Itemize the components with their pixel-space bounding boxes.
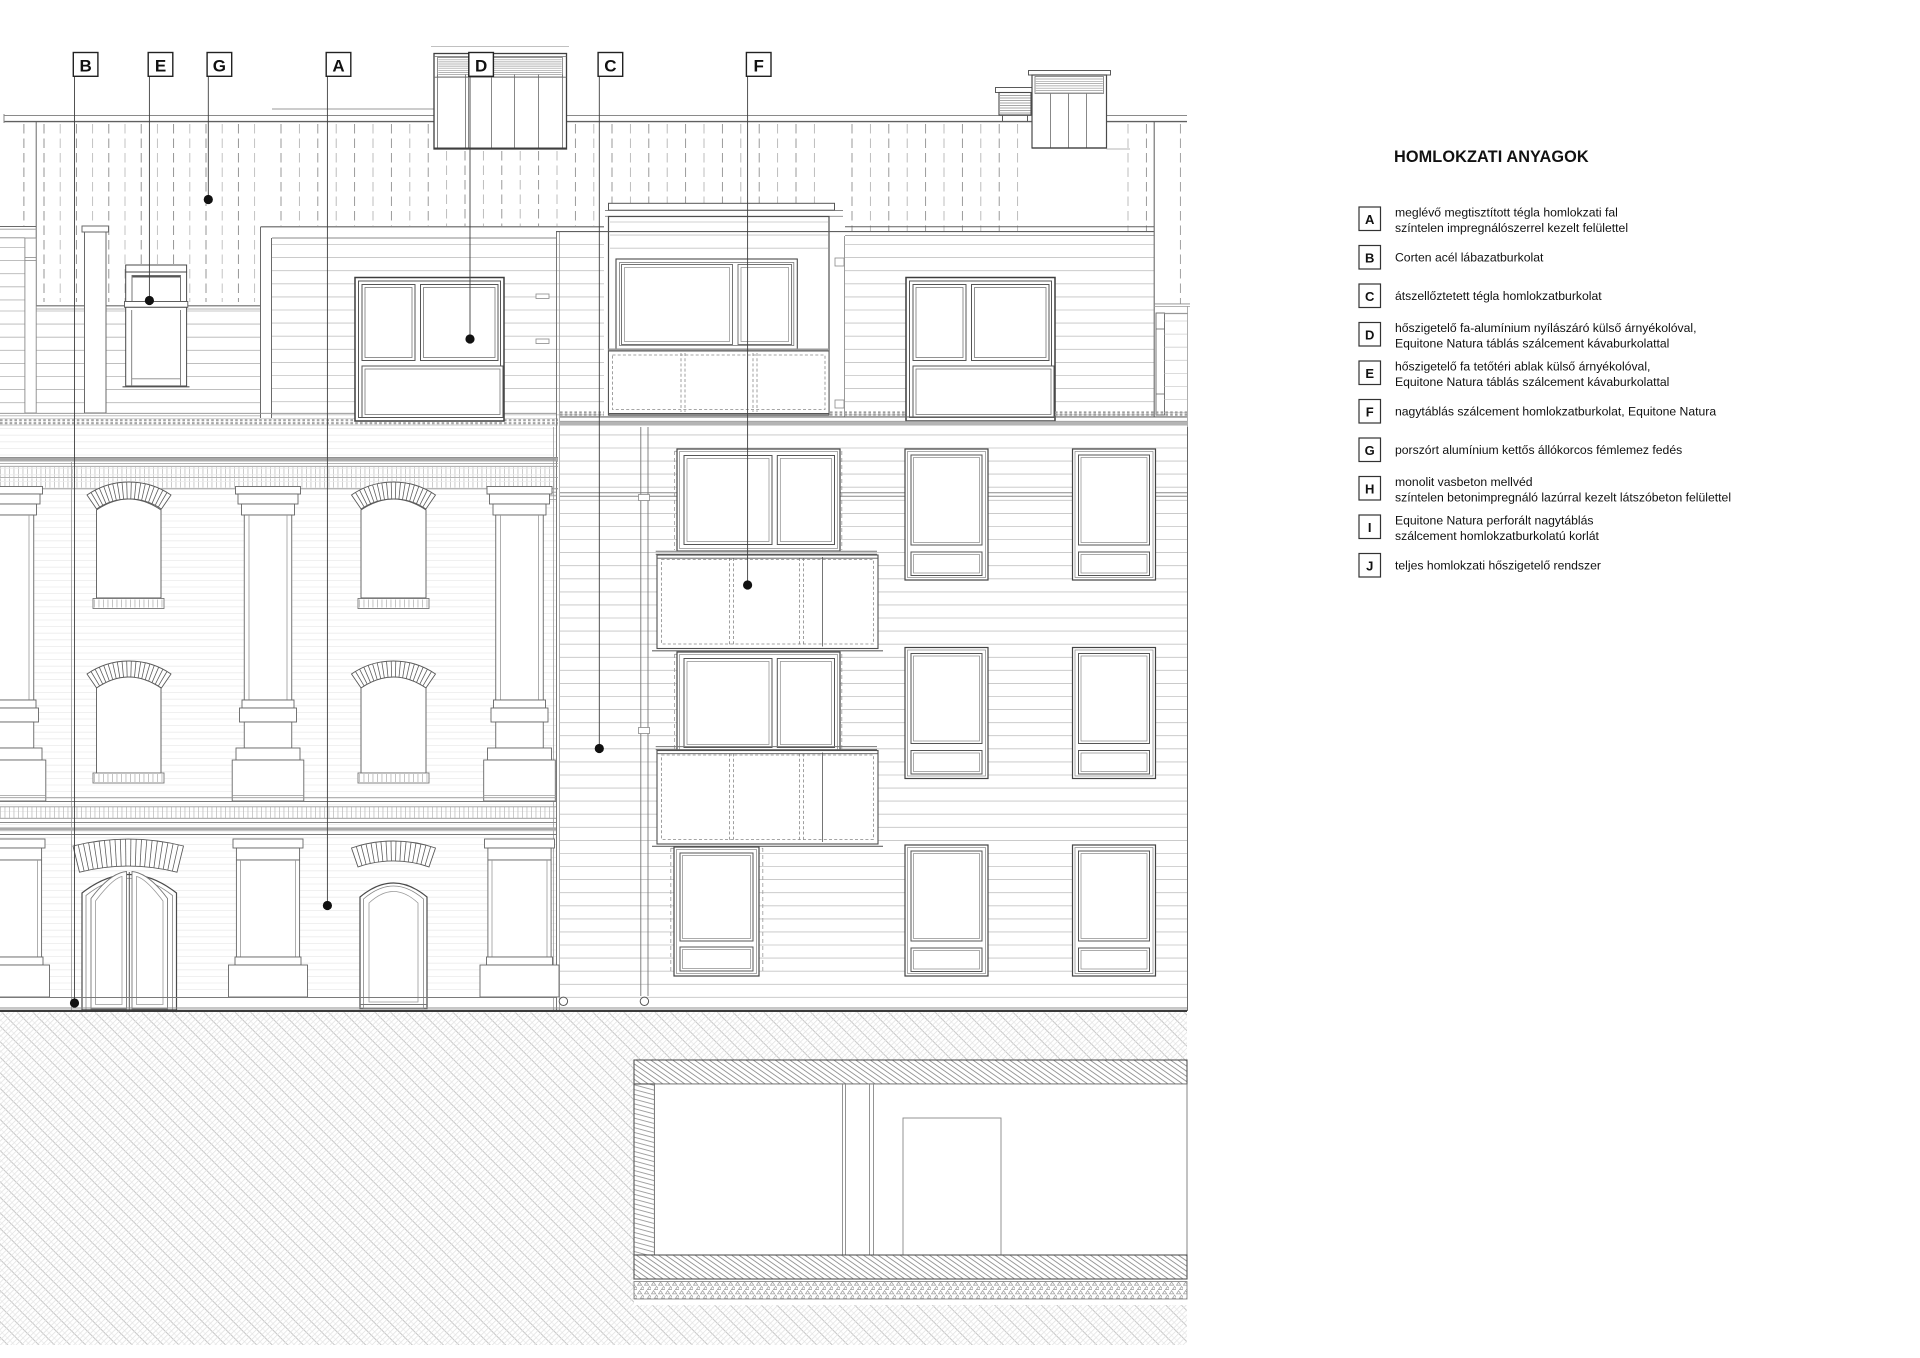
svg-text:meglévő megtisztított tégla ho: meglévő megtisztított tégla homlokzati f…	[1395, 206, 1618, 220]
svg-text:E: E	[1365, 366, 1374, 381]
svg-text:színtelen impregnálószerrel ke: színtelen impregnálószerrel kezelt felül…	[1395, 221, 1628, 235]
svg-text:HOMLOKZATI ANYAGOK: HOMLOKZATI ANYAGOK	[1394, 148, 1589, 166]
svg-text:J: J	[1366, 558, 1373, 573]
svg-text:hőszigetelő fa tetőtéri ablak: hőszigetelő fa tetőtéri ablak külső árny…	[1395, 360, 1650, 374]
svg-text:H: H	[1365, 481, 1374, 496]
svg-text:G: G	[1365, 443, 1375, 458]
svg-text:E: E	[155, 57, 166, 76]
svg-text:szálcement homlokzatburkolatú: szálcement homlokzatburkolatú korlát	[1395, 529, 1600, 543]
svg-text:Corten acél lábazatburkolat: Corten acél lábazatburkolat	[1395, 251, 1544, 265]
svg-text:teljes homlokzati hőszigetelő: teljes homlokzati hőszigetelő rendszer	[1395, 559, 1601, 573]
svg-text:D: D	[1365, 327, 1374, 342]
svg-text:Equitone Natura táblás szálcem: Equitone Natura táblás szálcement kávabu…	[1395, 375, 1669, 389]
svg-text:I: I	[1368, 520, 1372, 535]
svg-text:B: B	[79, 57, 91, 76]
svg-text:A: A	[1365, 212, 1375, 227]
svg-text:A: A	[332, 57, 344, 76]
svg-text:G: G	[213, 57, 226, 76]
svg-text:F: F	[1366, 404, 1374, 419]
svg-text:C: C	[1365, 289, 1375, 304]
svg-text:Equitone Natura táblás szálcem: Equitone Natura táblás szálcement kávabu…	[1395, 336, 1669, 350]
svg-text:C: C	[604, 57, 616, 76]
svg-text:nagytáblás szálcement homlokza: nagytáblás szálcement homlokzatburkolat,…	[1395, 405, 1716, 419]
svg-text:B: B	[1365, 250, 1374, 265]
svg-text:hőszigetelő fa-alumínium nyílá: hőszigetelő fa-alumínium nyílászáró küls…	[1395, 321, 1696, 335]
svg-text:D: D	[475, 57, 487, 76]
svg-text:F: F	[754, 57, 764, 76]
svg-text:átszellőztetett tégla homlokza: átszellőztetett tégla homlokzatburkolat	[1395, 289, 1602, 303]
svg-text:Equitone Natura perforált nagy: Equitone Natura perforált nagytáblás	[1395, 514, 1594, 528]
svg-text:színtelen betonimpregnáló lazú: színtelen betonimpregnáló lazúrral kezel…	[1395, 490, 1731, 504]
svg-text:monolit vasbeton mellvéd: monolit vasbeton mellvéd	[1395, 475, 1533, 489]
svg-text:porszórt alumínium kettős álló: porszórt alumínium kettős állókorcos fém…	[1395, 443, 1682, 457]
